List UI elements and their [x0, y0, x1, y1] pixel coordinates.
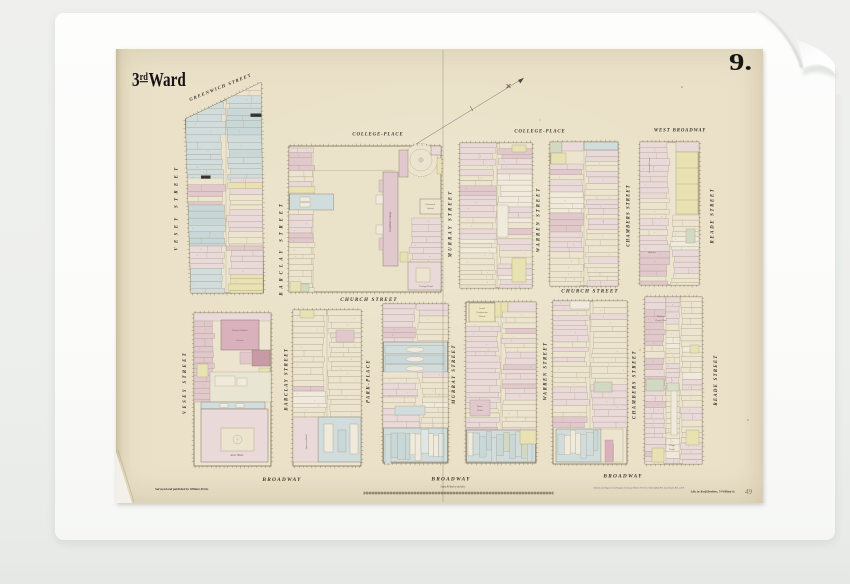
svg-text:PARK-PLACE: PARK-PLACE [367, 359, 372, 403]
svg-text:READE STREET: READE STREET [711, 188, 716, 244]
svg-text:WARREN STREET: WARREN STREET [544, 342, 549, 401]
svg-text:VESEY STREET: VESEY STREET [175, 163, 180, 250]
svg-text:READE STREET: READE STREET [714, 354, 719, 405]
svg-text:BROADWAY: BROADWAY [430, 477, 470, 483]
svg-text:CHAMBERS STREET: CHAMBERS STREET [633, 350, 638, 419]
svg-text:Lith. by Korff Brothers, 74 Wi: Lith. by Korff Brothers, 74 William St. [690, 491, 735, 494]
svg-text:CHURCH STREET: CHURCH STREET [340, 297, 397, 303]
svg-text:WARREN STREET: WARREN STREET [537, 187, 542, 253]
svg-text:CHURCH STREET: CHURCH STREET [561, 289, 618, 295]
svg-text:Entered according to Act of Co: Entered according to Act of Congress in … [593, 487, 685, 490]
svg-text:COLLEGE-PLACE: COLLEGE-PLACE [514, 130, 565, 135]
svg-text:MURRAY STREET: MURRAY STREET [452, 344, 457, 405]
svg-text:49: 49 [745, 488, 753, 496]
svg-text:Scale 80 feet to an inch.: Scale 80 feet to an inch. [441, 486, 466, 489]
svg-text:BROADWAY: BROADWAY [261, 477, 301, 483]
svg-text:MURRAY STREET: MURRAY STREET [449, 190, 454, 259]
svg-text:VESEY STREET: VESEY STREET [183, 351, 188, 414]
svg-text:Surveyed and published by Will: Surveyed and published by William Perris… [155, 488, 209, 491]
svg-text:BROADWAY: BROADWAY [602, 474, 642, 480]
svg-text:CHAMBERS STREET: CHAMBERS STREET [627, 184, 632, 247]
svg-text:BARCLAY STREET: BARCLAY STREET [285, 347, 290, 411]
svg-text:9.: 9. [729, 48, 752, 75]
svg-text:COLLEGE-PLACE: COLLEGE-PLACE [352, 133, 403, 138]
svg-text:BARCLAY STREET: BARCLAY STREET [280, 200, 285, 296]
svg-text:WEST BROADWAY: WEST BROADWAY [654, 129, 706, 134]
